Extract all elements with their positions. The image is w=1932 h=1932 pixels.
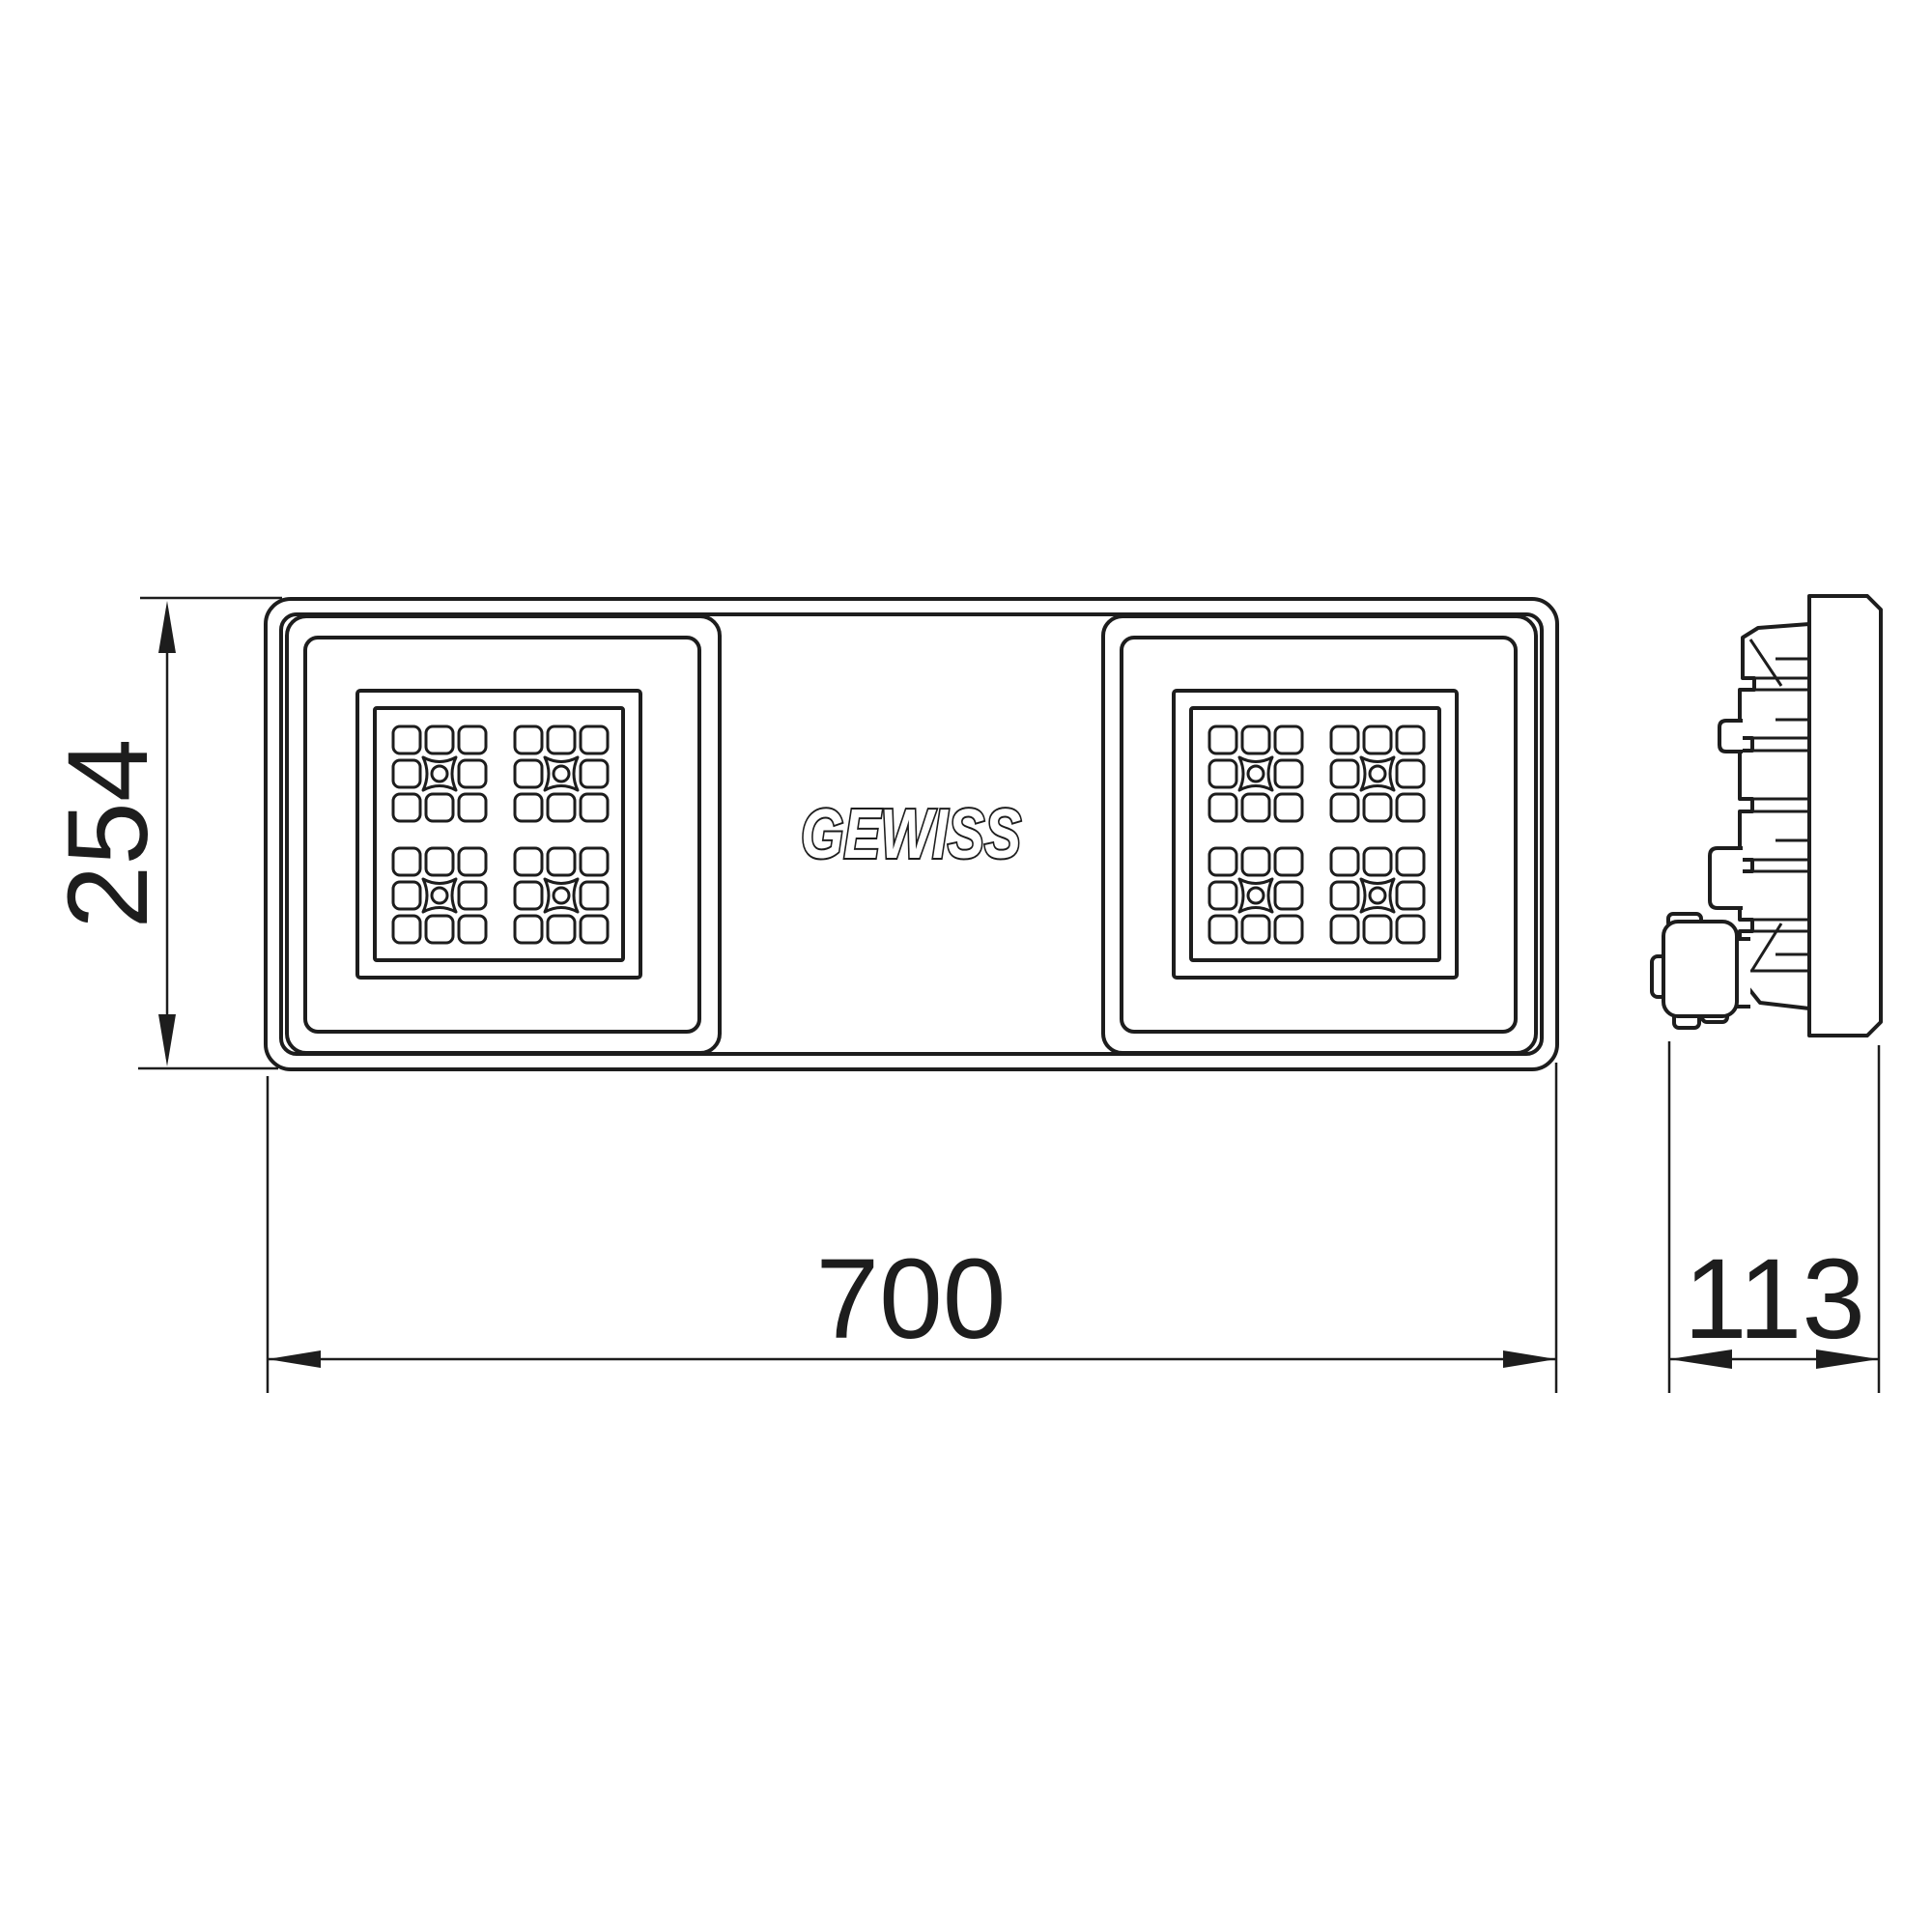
dimension-width: 700 [268, 1063, 1556, 1393]
arrowhead-right [1503, 1350, 1556, 1368]
led-module-right [1103, 616, 1536, 1053]
side-tab-upper [1719, 721, 1743, 752]
dimension-label-height: 254 [44, 739, 172, 929]
front-frame-profile [1809, 596, 1881, 1036]
arrowhead-left [268, 1350, 321, 1368]
dimension-depth: 113 [1669, 1041, 1879, 1393]
front-view: GEWISS [266, 599, 1557, 1069]
dimension-label-depth: 113 [1684, 1236, 1865, 1363]
dimension-label-width: 700 [816, 1236, 1007, 1363]
arrowhead-up [158, 601, 176, 653]
floodlight-dimension-drawing: GEWISS [0, 0, 1932, 1932]
brand-logo: GEWISS [801, 796, 1021, 873]
technical-drawing-page: GEWISS [0, 0, 1932, 1932]
side-view [1652, 596, 1881, 1036]
side-tab-middle [1710, 848, 1743, 908]
dimension-height: 254 [44, 598, 282, 1068]
arrowhead-down [158, 1014, 176, 1066]
cable-gland [1652, 914, 1750, 1028]
led-module-left [287, 616, 720, 1053]
